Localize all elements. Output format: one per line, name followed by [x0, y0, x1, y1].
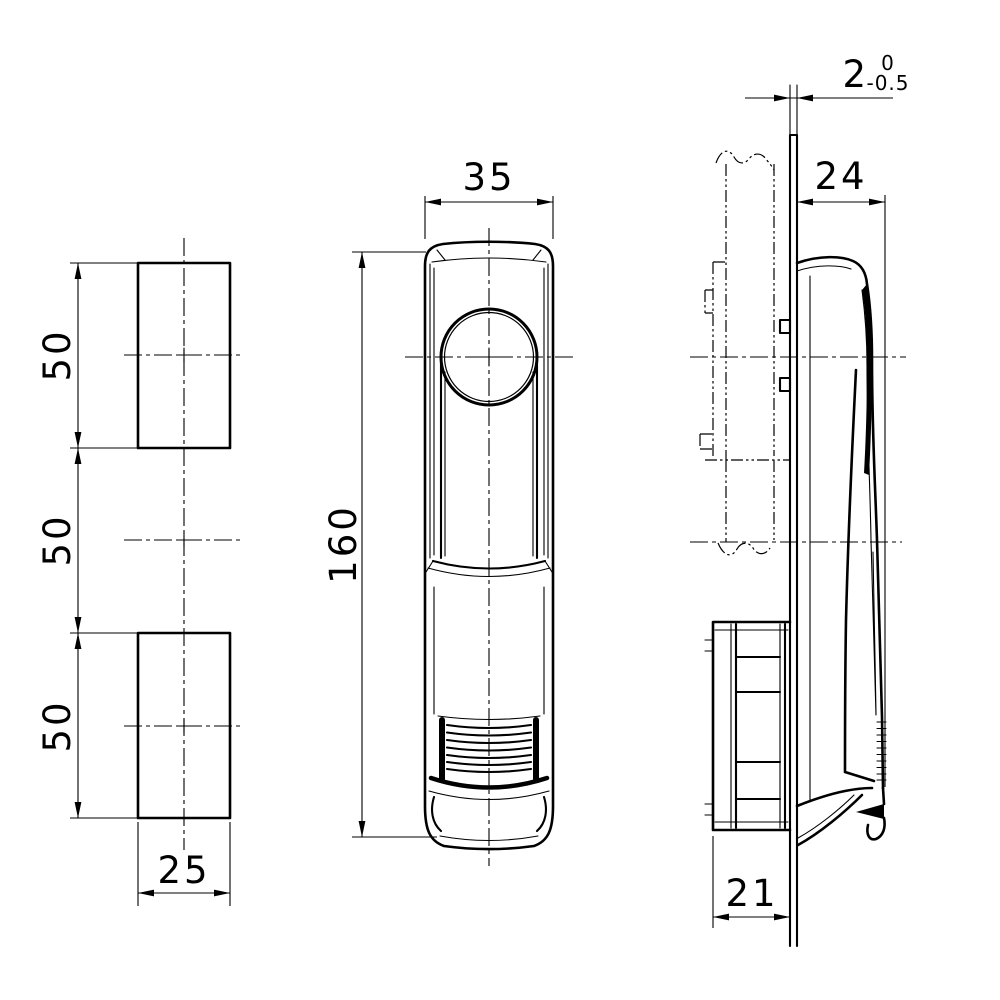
dim-160-label: 160: [322, 504, 365, 584]
technical-drawing: 50 50 50 25: [0, 0, 1000, 1000]
dim-24-label: 24: [814, 155, 867, 198]
dim-35-label: 35: [462, 156, 515, 199]
dim-50-top-label: 50: [36, 328, 79, 381]
dim-2-label: 2: [842, 53, 869, 96]
dim-2-tolerance-lower: -0.5: [866, 71, 909, 95]
dim-21-label: 21: [725, 872, 778, 915]
dim-50-mid-label: 50: [36, 513, 79, 566]
dim-25-label: 25: [157, 849, 210, 892]
drawing-page: 50 50 50 25: [0, 0, 1000, 1000]
dim-50-bottom-label: 50: [36, 699, 79, 752]
